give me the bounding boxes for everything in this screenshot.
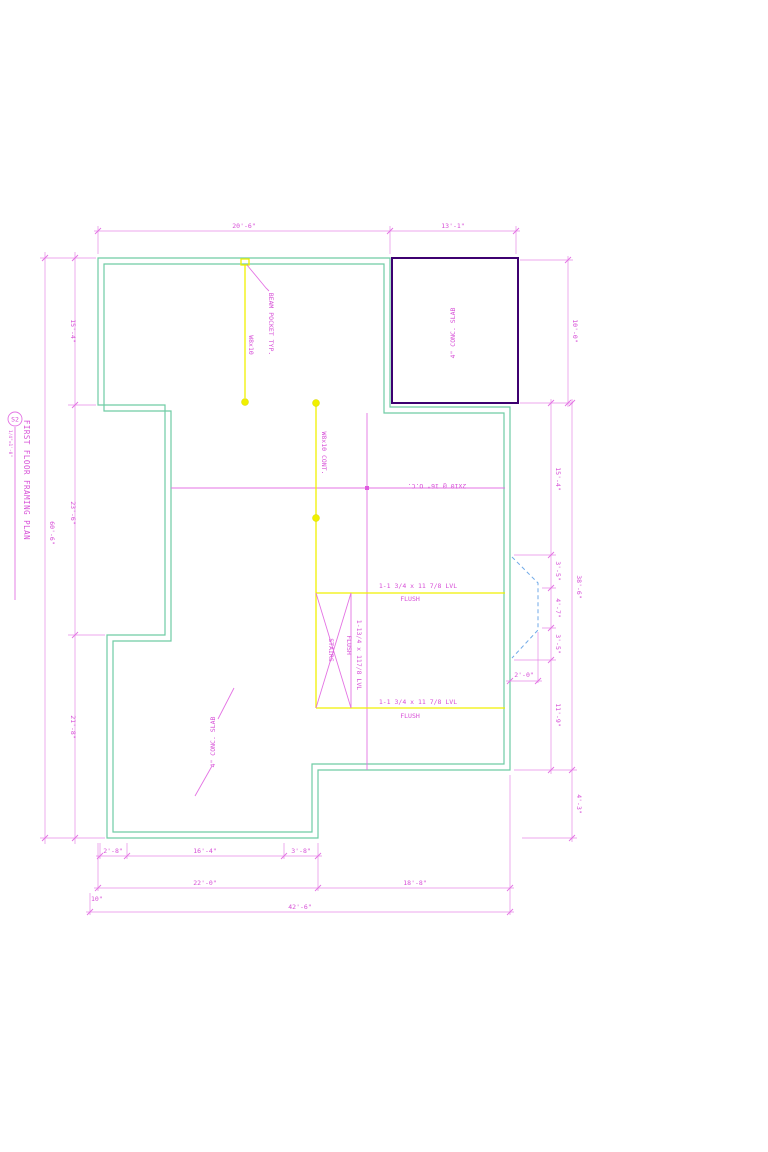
stair-lvl-label: 1-13/4 x 117/8 LVL bbox=[355, 620, 363, 691]
left-extension-lines bbox=[40, 258, 105, 838]
dim-right-garage: 10'-0" bbox=[571, 319, 579, 342]
dim-left-3: 21'-8" bbox=[69, 715, 77, 738]
dim-top-2: 13'-1" bbox=[441, 222, 464, 230]
dim-left-1: 15'-4" bbox=[69, 319, 77, 342]
wall-outline-inner bbox=[104, 264, 504, 832]
lvl-beam-bottom-flush-label: FLUSH bbox=[400, 712, 420, 720]
framing-plan-svg: 4" CONC. SLAB 2x10 @ 16" O.C. BEAM POCKE… bbox=[0, 0, 768, 1152]
stair-opening: STAIRS FLUSH 1-13/4 x 117/8 LVL bbox=[316, 593, 363, 708]
dimensions-bottom: 2'-8" 16'-4" 3'-8" 22'-0" 18'-8" 10" 42'… bbox=[86, 775, 514, 915]
dim-bottom-r1-2: 16'-4" bbox=[193, 847, 216, 855]
interior-framing: 2x10 @ 16" O.C. bbox=[171, 413, 505, 770]
dim-right-4: 3'-5" bbox=[554, 634, 562, 654]
garage-slab-label: 4" CONC. SLAB bbox=[449, 307, 457, 358]
room-slab: 4" CONC. SLAB bbox=[195, 688, 234, 796]
lvl-beam-top-label: 1-1 3/4 x 11 7/8 LVL bbox=[379, 582, 457, 590]
drawing-scale: 1/4"=1'-0" bbox=[7, 430, 13, 457]
dim-bay-depth: 2'-0" bbox=[514, 671, 534, 679]
dim-bottom-r1-1: 2'-8" bbox=[103, 847, 123, 855]
dim-bottom-r1-3: 3'-8" bbox=[291, 847, 311, 855]
dim-bottom-offset: 10" bbox=[91, 895, 103, 903]
beam-w8x10-cont-label: W8x10 CONT. bbox=[320, 431, 328, 474]
dim-right-2: 3'-5" bbox=[554, 561, 562, 581]
beam-pocket-label: BEAM POCKET TYP. bbox=[267, 293, 275, 356]
column-3 bbox=[313, 515, 320, 522]
dim-bottom-r2-2: 18'-8" bbox=[403, 879, 426, 887]
bay-window-dashed-line bbox=[512, 557, 538, 658]
dim-right-5: 11'-9" bbox=[554, 703, 562, 726]
lvl-beam-top-flush-label: FLUSH bbox=[400, 595, 420, 603]
bottom-extension-lines bbox=[90, 775, 510, 915]
stair-lvl-flush-label: FLUSH bbox=[345, 635, 353, 655]
dim-left-overall: 60'-6" bbox=[48, 521, 56, 544]
beam-w8x10-label: W8x10 bbox=[247, 335, 255, 355]
dim-left-2: 23'-6" bbox=[69, 501, 77, 524]
column-2 bbox=[313, 400, 320, 407]
beam-pocket-leader bbox=[247, 265, 269, 291]
dim-right-lower: 4'-3" bbox=[575, 794, 583, 814]
dimensions-left: 60'-6" 15'-4" 23'-6" 21'-8" bbox=[40, 252, 105, 844]
title-block: S2 1/4"=1'-0" FIRST FLOOR FRAMING PLAN bbox=[7, 412, 31, 600]
room-slab-label: 4" CONC. SLAB bbox=[209, 716, 217, 767]
top-extension-lines bbox=[98, 226, 516, 254]
joist-callout-label: 2x10 @ 16" O.C. bbox=[408, 482, 467, 490]
column-1 bbox=[242, 399, 249, 406]
dim-right-1: 15'-4" bbox=[554, 467, 562, 490]
stairs-label: STAIRS bbox=[327, 638, 335, 662]
dim-right-overall: 38'-6" bbox=[575, 575, 583, 598]
dim-bottom-r2-1: 22'-0" bbox=[193, 879, 216, 887]
bay-window bbox=[512, 557, 538, 658]
drawing-sheet: 4" CONC. SLAB 2x10 @ 16" O.C. BEAM POCKE… bbox=[0, 0, 768, 1152]
drawing-title: FIRST FLOOR FRAMING PLAN bbox=[22, 420, 31, 540]
lvl-beam-bottom-label: 1-1 3/4 x 11 7/8 LVL bbox=[379, 698, 457, 706]
joist-line-node bbox=[365, 486, 369, 490]
dimensions-top: 20'-6" 13'-1" bbox=[94, 222, 520, 254]
dim-bottom-overall: 42'-6" bbox=[288, 903, 311, 911]
right-extension-lines bbox=[514, 260, 577, 838]
dim-top-1: 20'-6" bbox=[232, 222, 255, 230]
garage-slab: 4" CONC. SLAB bbox=[392, 258, 518, 403]
dim-right-3: 4'-7" bbox=[554, 598, 562, 618]
sheet-number: S2 bbox=[11, 416, 19, 424]
